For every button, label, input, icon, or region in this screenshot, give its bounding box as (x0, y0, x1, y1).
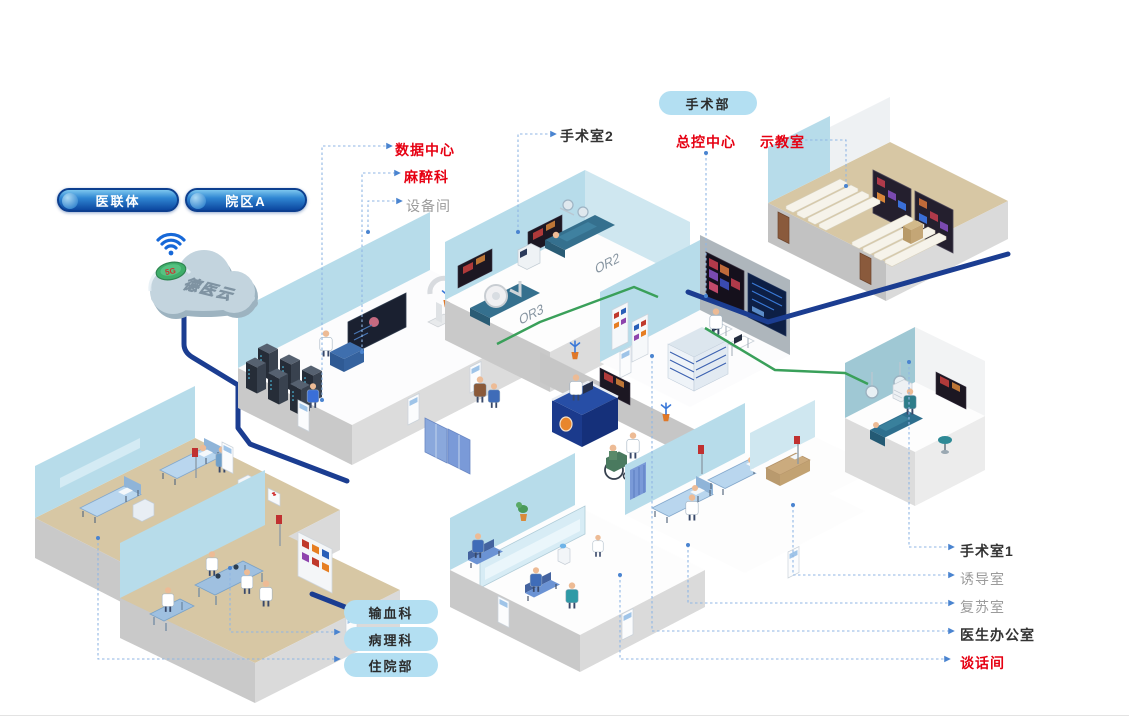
pill-campus-a[interactable]: 院区A (185, 188, 307, 212)
pill-pathology: 病理科 (344, 627, 438, 651)
cloud-group: 德医云 5G (150, 234, 258, 319)
ward-door (222, 442, 233, 474)
label-doctor-office: 医生办公室 (960, 625, 1035, 645)
corridor-double-door (425, 418, 470, 474)
label-recovery-room: 复苏室 (960, 597, 1005, 617)
pill-highlight (62, 193, 78, 209)
isometric-hospital-diagram: OR2 OR3 (0, 0, 1129, 721)
label-talk-room: 谈话间 (960, 653, 1005, 673)
ward-patient (200, 445, 206, 451)
label-data-center: 数据中心 (395, 140, 455, 160)
control-door (620, 347, 631, 379)
label-demo-classroom: 示教室 (760, 132, 805, 152)
pill-inpatient: 住院部 (344, 653, 438, 677)
label-master-control: 总控中心 (676, 132, 736, 152)
talk-room-door (622, 609, 633, 641)
attendant-figure (627, 432, 639, 458)
label-operating-room-2: 手术室2 (560, 126, 614, 146)
pill-consortium[interactable]: 医联体 (57, 188, 179, 212)
pill-highlight (190, 193, 206, 209)
pill-blood-transfusion: 输血科 (344, 600, 438, 624)
pill-campus-a-label: 院区A (225, 191, 266, 210)
pill-consortium-label: 医联体 (95, 191, 140, 210)
left-wing-door (408, 394, 419, 426)
label-induction-room: 诱导室 (960, 569, 1005, 589)
demo-classroom-block (768, 97, 1008, 301)
left-wing-door (298, 400, 309, 432)
label-operating-room-1: 手术室1 (960, 541, 1014, 561)
label-equipment-room: 设备间 (406, 196, 451, 216)
bottom-divider (0, 715, 1129, 716)
talk-room-door (498, 596, 509, 628)
wifi-icon (158, 234, 184, 255)
pill-surgery-dept: 手术部 (659, 91, 757, 115)
or1-block (845, 327, 985, 506)
label-anesthesia: 麻醉科 (404, 167, 449, 187)
recovery-patient (692, 485, 698, 491)
